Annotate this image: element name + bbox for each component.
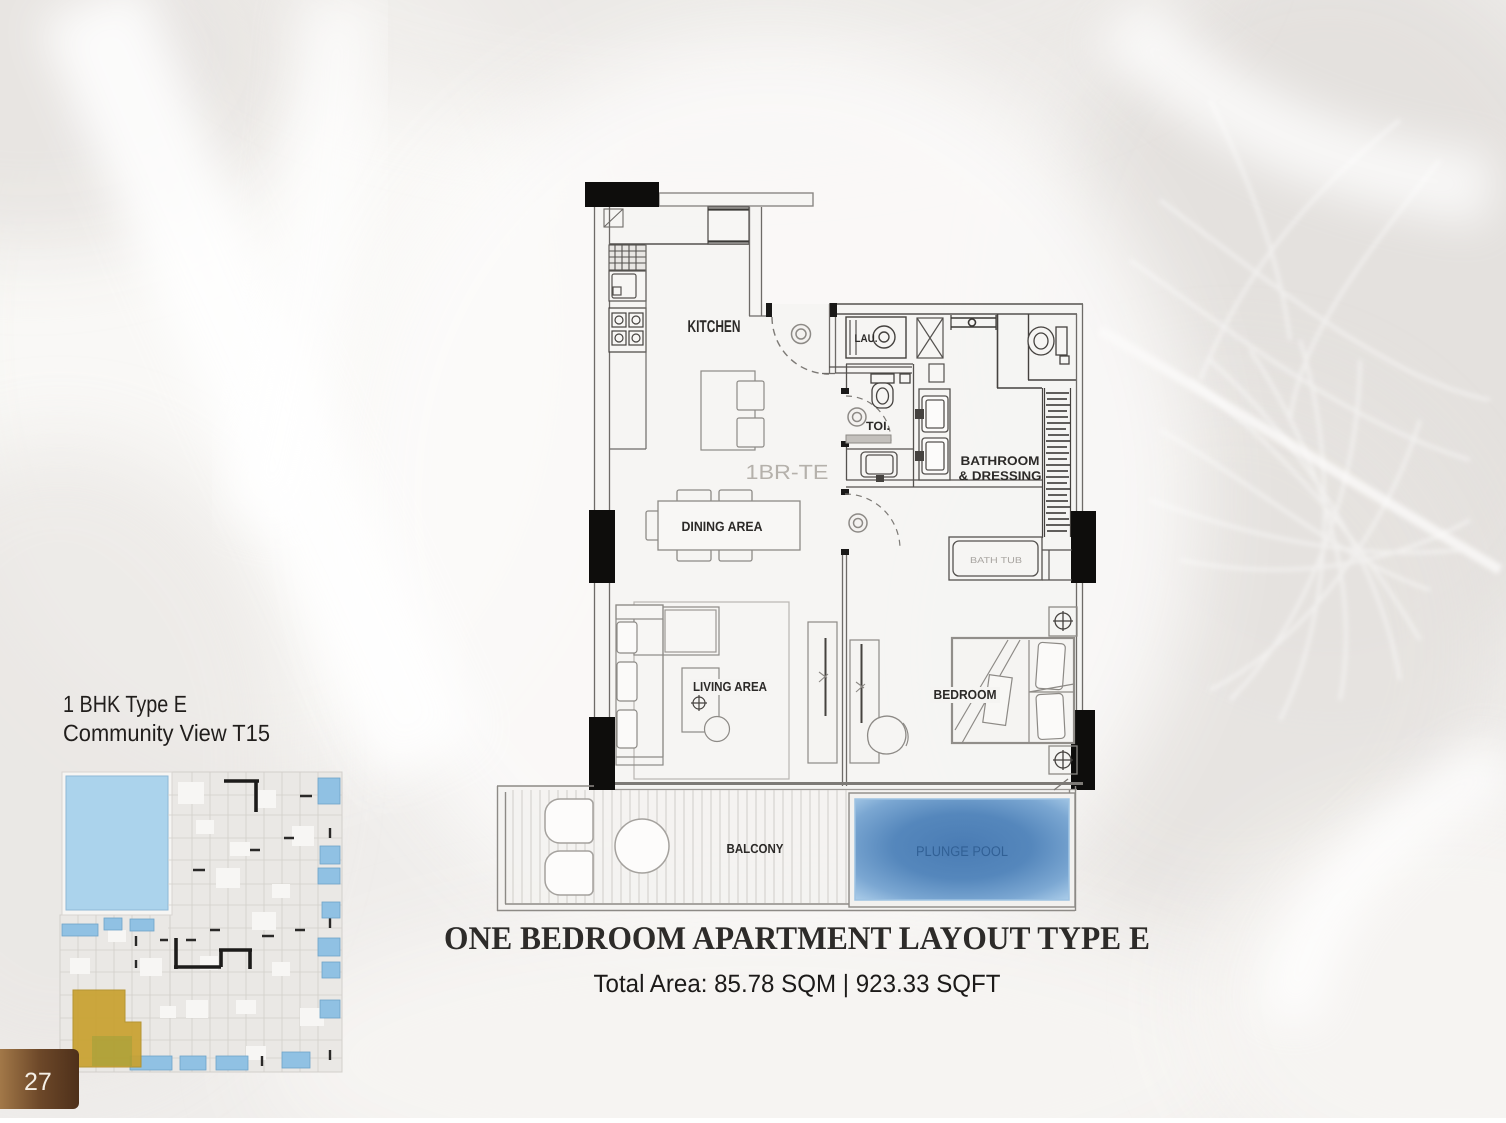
svg-text:Total Area: 85.78 SQM | 923.33: Total Area: 85.78 SQM | 923.33 SQFT [594,970,1001,998]
svg-text:BALCONY: BALCONY [727,841,784,856]
svg-text:1 BHK Type E: 1 BHK Type E [63,691,187,717]
svg-text:Community View T15: Community View T15 [63,720,270,746]
svg-text:TOI.: TOI. [866,419,890,433]
svg-text:BATH TUB: BATH TUB [970,555,1022,565]
svg-text:KITCHEN: KITCHEN [688,317,741,336]
svg-text:1BR-TE: 1BR-TE [746,461,829,484]
svg-text:27: 27 [24,1068,52,1096]
svg-text:LAU.: LAU. [855,333,878,345]
svg-text:& DRESSING: & DRESSING [959,469,1042,483]
svg-text:BATHROOM: BATHROOM [961,454,1040,468]
svg-text:DINING AREA: DINING AREA [682,519,763,534]
svg-text:BEDROOM: BEDROOM [934,687,997,702]
svg-text:LIVING AREA: LIVING AREA [693,679,768,694]
svg-text:ONE BEDROOM APARTMENT LAYOUT T: ONE BEDROOM APARTMENT LAYOUT TYPE E [444,921,1150,957]
svg-text:PLUNGE POOL: PLUNGE POOL [916,843,1008,859]
